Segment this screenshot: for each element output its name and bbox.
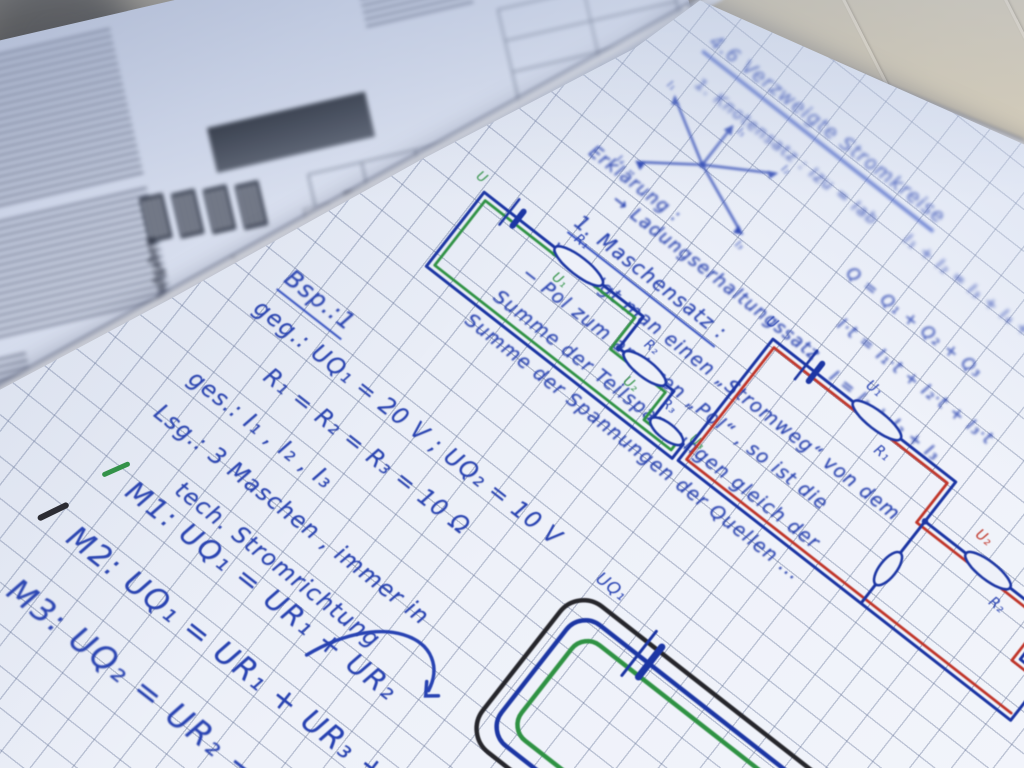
circuit2-u2-label: U₂ [972,526,995,549]
photo-scene: Aufgaben Die Sterne Die Sterne 4.6 Verzw… [0,0,1024,768]
notebook-wrapper: 4.6 Verzweigte Stromkreise 1. Knotensatz… [0,0,1024,768]
inner-loop-green [509,633,896,768]
green-check-mark [101,461,130,478]
circuit1-source-label: U [473,169,490,187]
resistor-icon-r2 [960,546,1015,595]
node-current-label: I₂ [779,162,794,177]
circuit2-r1-label: R₁ [870,442,893,465]
circuit3-source-label: UQ₁ [591,569,630,606]
node-current-label: I₁ [664,78,678,93]
circuit1-u1-label: U₁ [549,270,571,292]
battery-icon [513,212,524,226]
circuit2-u1-label: U₁ [863,378,886,401]
node-current-label: I₃ [733,238,748,253]
circuit1-u2-label: U₂ [620,374,642,396]
black-check-mark [37,501,70,521]
resistor-icon-r1 [848,395,906,446]
circuit2-r2-label: R₂ [985,594,1008,617]
node-current-label: I₅ [734,125,748,140]
notebook-paper: 4.6 Verzweigte Stromkreise 1. Knotensatz… [0,0,1024,768]
resistor-icon-link [869,548,907,590]
circuit1-r2-label: R₂ [641,337,662,358]
